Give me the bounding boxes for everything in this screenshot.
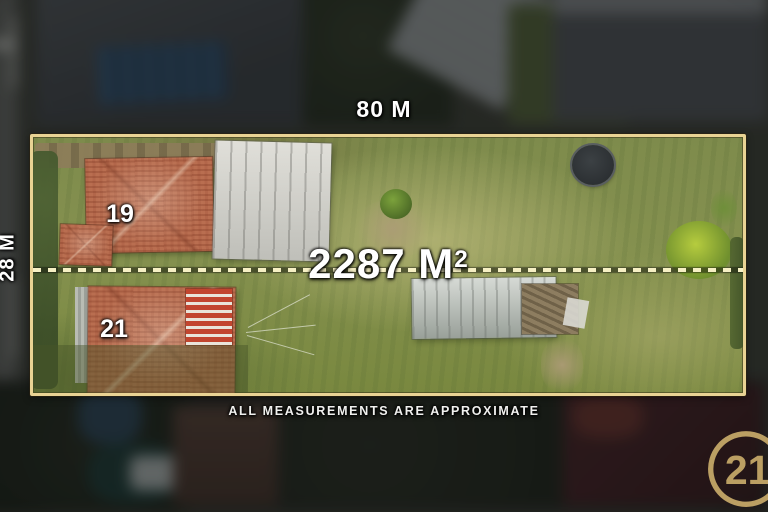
clothesline — [248, 294, 310, 328]
grass-shade — [33, 345, 248, 393]
house-number-21: 21 — [91, 315, 137, 344]
carport-roof — [186, 289, 232, 345]
shed-debris — [563, 297, 590, 328]
land-area-superscript: 2 — [454, 246, 468, 273]
bush — [380, 189, 412, 219]
trampoline — [572, 145, 614, 185]
clothesline — [247, 335, 315, 355]
dirt-path — [541, 337, 583, 393]
property-marketing-image: 80 M 28 M 2287 M2 19 21 ALL MEASUREMENTS… — [0, 0, 768, 512]
house-number-19: 19 — [97, 200, 143, 229]
frontage-measurement-label: 80 M — [0, 96, 768, 123]
depth-measurement-label: 28 M — [0, 226, 20, 290]
century21-logo-icon: 21 — [705, 428, 768, 510]
clothesline — [246, 325, 316, 333]
measurements-disclaimer: ALL MEASUREMENTS ARE APPROXIMATE — [0, 404, 768, 418]
land-area-label: 2287 M2 — [30, 243, 746, 285]
land-area-value: 2287 M — [308, 240, 454, 287]
century21-logo-number: 21 — [725, 447, 768, 493]
bush — [711, 189, 737, 227]
